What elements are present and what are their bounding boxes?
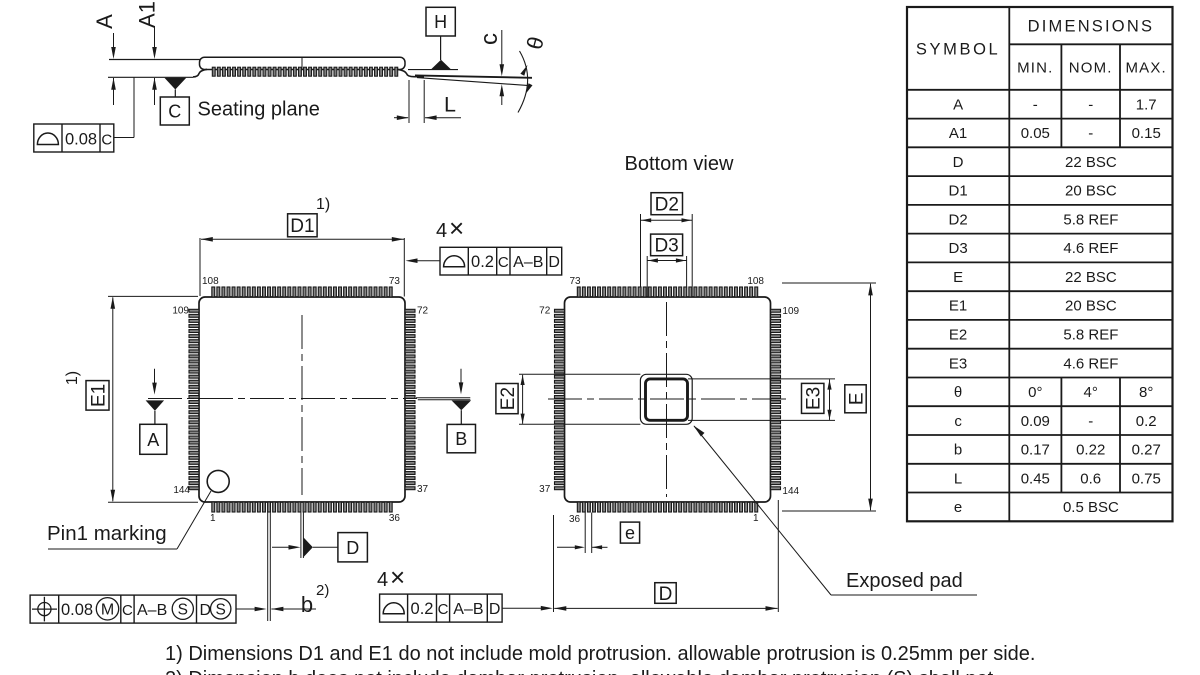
svg-text:2): 2) bbox=[316, 582, 329, 599]
svg-text:×: × bbox=[449, 213, 464, 243]
svg-text:22 BSC: 22 BSC bbox=[1065, 154, 1117, 171]
svg-text:D2: D2 bbox=[949, 211, 968, 228]
svg-text:C: C bbox=[498, 254, 509, 271]
svg-text:E2: E2 bbox=[498, 387, 519, 410]
svg-text:e: e bbox=[954, 499, 962, 516]
svg-text:C: C bbox=[101, 132, 112, 149]
svg-text:-: - bbox=[1088, 413, 1093, 430]
svg-text:b: b bbox=[301, 592, 313, 617]
svg-text:D2: D2 bbox=[655, 195, 679, 216]
svg-text:20 BSC: 20 BSC bbox=[1065, 183, 1117, 200]
svg-text:MIN.: MIN. bbox=[1017, 60, 1053, 77]
svg-text:37: 37 bbox=[539, 484, 551, 495]
svg-text:L: L bbox=[444, 93, 456, 117]
svg-text:2) Dimension b does not includ: 2) Dimension b does not include dambar p… bbox=[165, 668, 994, 675]
svg-text:e: e bbox=[625, 523, 635, 543]
svg-text:M: M bbox=[101, 602, 114, 619]
svg-text:SYMBOL: SYMBOL bbox=[916, 40, 1000, 58]
svg-text:109: 109 bbox=[782, 306, 799, 317]
svg-text:E3: E3 bbox=[949, 355, 967, 372]
svg-text:0.6: 0.6 bbox=[1080, 470, 1101, 487]
svg-text:A–B: A–B bbox=[513, 254, 543, 271]
svg-text:D: D bbox=[548, 254, 560, 271]
svg-text:E3: E3 bbox=[804, 387, 825, 410]
svg-text:0.08: 0.08 bbox=[61, 601, 93, 619]
svg-text:D: D bbox=[346, 538, 359, 558]
svg-text:S: S bbox=[178, 601, 188, 618]
svg-text:A: A bbox=[953, 96, 963, 113]
svg-text:-: - bbox=[1088, 125, 1093, 142]
svg-text:-: - bbox=[1088, 96, 1093, 113]
svg-text:8°: 8° bbox=[1139, 384, 1153, 401]
svg-text:×: × bbox=[390, 562, 405, 592]
svg-text:L: L bbox=[954, 470, 962, 487]
svg-text:DIMENSIONS: DIMENSIONS bbox=[1028, 18, 1155, 36]
svg-text:E: E bbox=[846, 392, 867, 405]
svg-text:Bottom view: Bottom view bbox=[625, 153, 734, 175]
svg-text:-: - bbox=[1033, 96, 1038, 113]
svg-text:E1: E1 bbox=[949, 298, 967, 315]
svg-text:0.75: 0.75 bbox=[1132, 470, 1161, 487]
svg-text:72: 72 bbox=[417, 306, 429, 317]
svg-text:0.45: 0.45 bbox=[1021, 470, 1050, 487]
svg-text:4.6 REF: 4.6 REF bbox=[1063, 240, 1118, 257]
svg-text:5.8 REF: 5.8 REF bbox=[1063, 327, 1118, 344]
svg-text:A: A bbox=[147, 430, 159, 450]
svg-text:1: 1 bbox=[753, 513, 759, 524]
svg-text:D1: D1 bbox=[949, 183, 968, 200]
svg-text:1): 1) bbox=[316, 196, 330, 213]
svg-text:Exposed pad: Exposed pad bbox=[846, 570, 963, 592]
svg-text:D3: D3 bbox=[654, 236, 678, 257]
svg-text:108: 108 bbox=[202, 276, 219, 287]
svg-text:1): 1) bbox=[64, 371, 81, 385]
svg-text:D: D bbox=[659, 584, 673, 605]
svg-text:MAX.: MAX. bbox=[1125, 60, 1166, 77]
svg-text:4: 4 bbox=[377, 569, 388, 591]
svg-text:0.05: 0.05 bbox=[1021, 125, 1050, 142]
svg-text:C: C bbox=[168, 102, 181, 122]
svg-text:0.08: 0.08 bbox=[65, 131, 97, 149]
svg-text:0.15: 0.15 bbox=[1132, 125, 1161, 142]
svg-text:E1: E1 bbox=[88, 384, 109, 407]
svg-text:E2: E2 bbox=[949, 327, 967, 344]
svg-text:22 BSC: 22 BSC bbox=[1065, 269, 1117, 286]
svg-text:NOM.: NOM. bbox=[1069, 60, 1113, 77]
svg-text:4: 4 bbox=[436, 220, 447, 242]
svg-text:0.27: 0.27 bbox=[1132, 442, 1161, 459]
svg-text:4°: 4° bbox=[1084, 384, 1098, 401]
svg-text:C: C bbox=[122, 602, 133, 619]
svg-text:36: 36 bbox=[569, 514, 581, 525]
svg-text:c: c bbox=[476, 33, 503, 45]
svg-text:0.2: 0.2 bbox=[1136, 413, 1157, 430]
svg-text:0°: 0° bbox=[1028, 384, 1042, 401]
svg-text:C: C bbox=[438, 601, 449, 618]
svg-text:144: 144 bbox=[782, 486, 799, 497]
svg-text:37: 37 bbox=[417, 484, 429, 495]
svg-text:0.22: 0.22 bbox=[1076, 442, 1105, 459]
svg-text:D3: D3 bbox=[949, 240, 968, 257]
svg-text:73: 73 bbox=[389, 276, 401, 287]
svg-text:A–B: A–B bbox=[137, 602, 167, 619]
svg-text:109: 109 bbox=[172, 306, 189, 317]
svg-text:144: 144 bbox=[173, 485, 190, 496]
svg-text:36: 36 bbox=[389, 513, 401, 524]
svg-text:0.2: 0.2 bbox=[411, 600, 434, 618]
svg-text:1.7: 1.7 bbox=[1136, 96, 1157, 113]
svg-text:20 BSC: 20 BSC bbox=[1065, 298, 1117, 315]
svg-text:A: A bbox=[92, 14, 117, 29]
svg-text:Pin1 marking: Pin1 marking bbox=[47, 522, 167, 545]
svg-text:108: 108 bbox=[747, 276, 764, 287]
svg-text:D: D bbox=[953, 154, 964, 171]
svg-text:S: S bbox=[216, 601, 226, 618]
svg-text:θ: θ bbox=[954, 384, 962, 401]
svg-text:b: b bbox=[954, 442, 962, 459]
svg-text:0.17: 0.17 bbox=[1021, 442, 1050, 459]
svg-text:E: E bbox=[953, 269, 963, 286]
svg-text:4.6 REF: 4.6 REF bbox=[1063, 355, 1118, 372]
svg-text:H: H bbox=[434, 12, 447, 32]
svg-text:72: 72 bbox=[539, 306, 551, 317]
svg-text:D1: D1 bbox=[290, 216, 314, 237]
svg-text:1: 1 bbox=[210, 513, 216, 524]
svg-text:B: B bbox=[455, 429, 467, 449]
svg-text:1) Dimensions D1 and E1 do not: 1) Dimensions D1 and E1 do not include m… bbox=[165, 643, 1035, 665]
svg-text:Seating plane: Seating plane bbox=[198, 99, 320, 121]
svg-text:A1: A1 bbox=[949, 125, 967, 142]
svg-text:73: 73 bbox=[570, 276, 582, 287]
svg-text:c: c bbox=[954, 413, 962, 430]
svg-text:5.8 REF: 5.8 REF bbox=[1063, 211, 1118, 228]
svg-text:D: D bbox=[200, 602, 212, 619]
svg-text:A–B: A–B bbox=[453, 601, 483, 618]
svg-text:0.2: 0.2 bbox=[471, 253, 494, 271]
svg-text:A1: A1 bbox=[135, 1, 160, 28]
svg-text:0.5 BSC: 0.5 BSC bbox=[1063, 499, 1119, 516]
svg-text:D: D bbox=[489, 601, 501, 618]
svg-text:0.09: 0.09 bbox=[1021, 413, 1050, 430]
